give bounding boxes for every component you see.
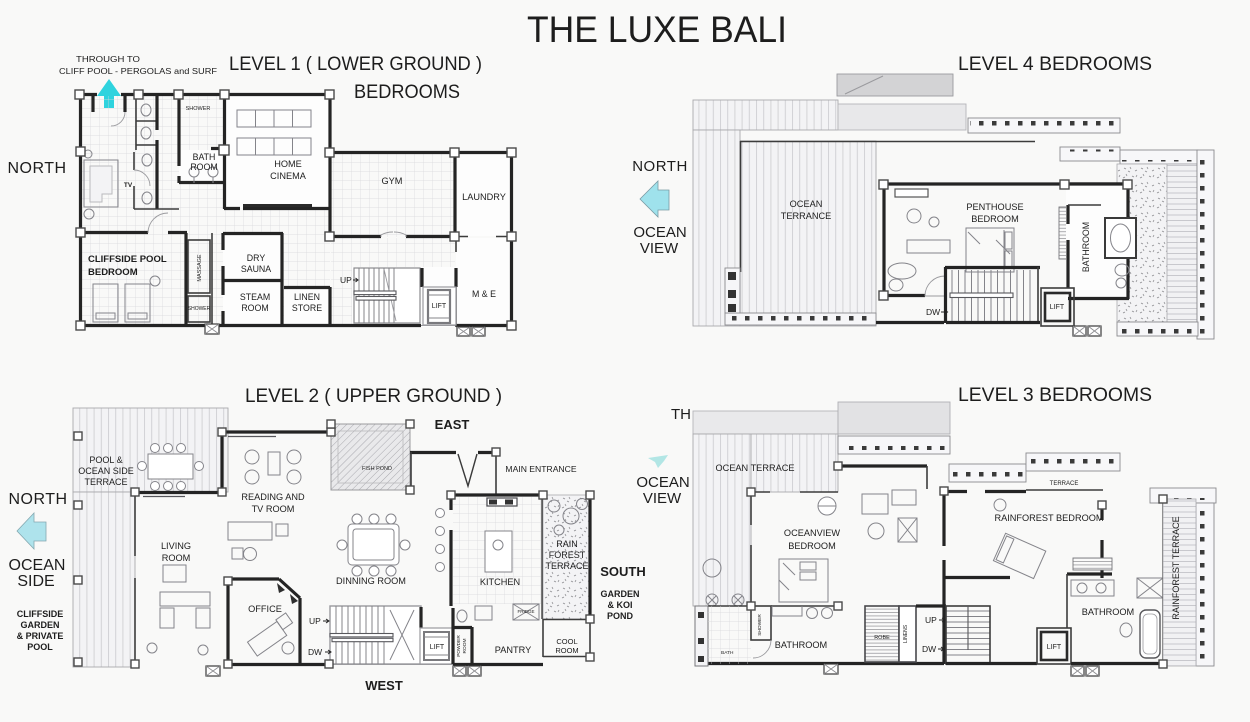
svg-text:BATHROOM: BATHROOM	[1082, 607, 1134, 617]
svg-text:STORE: STORE	[292, 303, 322, 313]
svg-text:OCEANVIEW: OCEANVIEW	[784, 528, 840, 538]
svg-text:PANTRY: PANTRY	[495, 645, 531, 655]
svg-text:KITCHEN: KITCHEN	[480, 577, 520, 587]
svg-text:DW: DW	[926, 307, 940, 317]
svg-text:CLIFFSIDE: CLIFFSIDE	[17, 609, 64, 619]
svg-text:TERRACE: TERRACE	[545, 561, 588, 571]
svg-text:COOL: COOL	[556, 637, 577, 646]
svg-text:LIFT: LIFT	[432, 303, 447, 310]
svg-text:BEDROOM: BEDROOM	[971, 214, 1018, 224]
svg-text:TV: TV	[124, 182, 133, 189]
svg-text:THE LUXE BALI: THE LUXE BALI	[527, 9, 787, 50]
svg-text:HOME: HOME	[274, 159, 302, 169]
svg-text:LEVEL 1 ( LOWER GROUND ): LEVEL 1 ( LOWER GROUND )	[229, 54, 482, 75]
svg-text:UP: UP	[925, 615, 937, 625]
svg-text:POOL: POOL	[27, 642, 53, 652]
svg-text:CINEMA: CINEMA	[270, 171, 307, 181]
svg-text:MASSAGE: MASSAGE	[197, 254, 203, 282]
svg-text:TERRACE: TERRACE	[1050, 481, 1079, 487]
svg-text:& PRIVATE: & PRIVATE	[17, 631, 64, 641]
svg-text:SOUTH: SOUTH	[600, 564, 646, 579]
svg-text:NORTH: NORTH	[8, 491, 67, 508]
svg-text:SAUNA: SAUNA	[241, 264, 271, 274]
svg-text:POOL &: POOL &	[89, 455, 122, 465]
svg-text:OCEAN: OCEAN	[9, 557, 66, 574]
svg-text:GYM: GYM	[382, 176, 403, 186]
svg-text:EAST: EAST	[435, 417, 470, 432]
svg-text:THROUGH TO: THROUGH TO	[76, 54, 140, 64]
svg-text:MAIN ENTRANCE: MAIN ENTRANCE	[505, 464, 576, 474]
svg-text:STEAM: STEAM	[240, 292, 270, 302]
svg-text:DW: DW	[922, 644, 936, 654]
svg-text:OCEAN: OCEAN	[636, 474, 689, 491]
svg-text:POWDER: POWDER	[456, 635, 462, 657]
svg-text:ROOM: ROOM	[162, 553, 191, 563]
svg-text:LIFT: LIFT	[1047, 644, 1062, 651]
svg-text:ROBE: ROBE	[874, 635, 890, 641]
svg-text:FISH POND: FISH POND	[362, 466, 392, 472]
svg-text:BATH: BATH	[721, 650, 734, 656]
svg-text:RAINFOREST TERRACE: RAINFOREST TERRACE	[1171, 516, 1181, 619]
svg-text:ROOM: ROOM	[190, 162, 217, 172]
svg-text:RAINFOREST BEDROOM: RAINFOREST BEDROOM	[994, 513, 1103, 523]
svg-text:BEDROOM: BEDROOM	[88, 267, 138, 278]
svg-text:ROOM: ROOM	[462, 639, 468, 654]
svg-text:LIFT: LIFT	[430, 644, 445, 651]
svg-text:SHOWER: SHOWER	[757, 614, 763, 636]
svg-text:CLIFFSIDE POOL: CLIFFSIDE POOL	[88, 254, 167, 265]
svg-text:GARDEN: GARDEN	[600, 589, 639, 599]
svg-text:SHOWER: SHOWER	[186, 106, 211, 112]
svg-text:ROOM: ROOM	[555, 646, 578, 655]
svg-text:TV ROOM: TV ROOM	[252, 504, 295, 514]
svg-text:LEVEL 3 BEDROOMS: LEVEL 3 BEDROOMS	[958, 385, 1152, 406]
svg-text:RAIN: RAIN	[556, 539, 578, 549]
svg-text:LAUNDRY: LAUNDRY	[462, 192, 506, 202]
svg-text:OFFICE: OFFICE	[248, 604, 282, 614]
svg-text:GARDEN: GARDEN	[20, 620, 59, 630]
svg-text:TH: TH	[671, 406, 691, 423]
svg-text:LIFT: LIFT	[1050, 304, 1065, 311]
svg-text:LINENS: LINENS	[903, 624, 909, 643]
svg-text:BEDROOMS: BEDROOMS	[354, 82, 460, 103]
svg-text:UP: UP	[309, 616, 321, 626]
svg-text:LINEN: LINEN	[294, 292, 320, 302]
svg-text:BEDROOM: BEDROOM	[788, 541, 835, 551]
svg-text:& KOI: & KOI	[607, 600, 632, 610]
svg-text:NORTH: NORTH	[7, 160, 66, 177]
svg-text:READING AND: READING AND	[241, 492, 305, 502]
svg-text:ROOM: ROOM	[241, 303, 268, 313]
svg-text:DINNING ROOM: DINNING ROOM	[336, 576, 406, 586]
svg-text:LEVEL 2 ( UPPER GROUND ): LEVEL 2 ( UPPER GROUND )	[245, 386, 502, 407]
svg-text:LIVING: LIVING	[161, 541, 191, 551]
svg-text:VIEW: VIEW	[640, 240, 679, 257]
svg-text:NORTH: NORTH	[632, 158, 688, 175]
svg-text:TERRANCE: TERRANCE	[781, 211, 832, 221]
svg-text:FOREST: FOREST	[549, 550, 586, 560]
svg-text:FRIDGE: FRIDGE	[517, 609, 534, 614]
svg-text:VIEW: VIEW	[643, 490, 682, 507]
svg-text:BATHROOM: BATHROOM	[775, 640, 827, 650]
svg-text:DRY: DRY	[247, 253, 266, 263]
svg-text:POND: POND	[607, 611, 634, 621]
svg-text:OCEAN: OCEAN	[790, 199, 823, 209]
svg-text:BATH: BATH	[193, 152, 216, 162]
svg-text:SHOWER: SHOWER	[188, 306, 211, 312]
svg-text:DW: DW	[308, 647, 322, 657]
svg-text:WEST: WEST	[365, 678, 403, 693]
svg-text:SIDE: SIDE	[17, 573, 54, 590]
svg-text:PENTHOUSE: PENTHOUSE	[966, 202, 1023, 212]
svg-text:LEVEL 4 BEDROOMS: LEVEL 4 BEDROOMS	[958, 54, 1152, 75]
svg-text:CLIFF POOL - PERGOLAS and SURF: CLIFF POOL - PERGOLAS and SURF	[59, 66, 217, 76]
svg-text:UP: UP	[340, 275, 352, 285]
svg-text:OCEAN: OCEAN	[633, 224, 686, 241]
svg-text:OCEAN TERRACE: OCEAN TERRACE	[716, 463, 795, 473]
svg-text:M & E: M & E	[472, 289, 496, 299]
svg-text:BATHROOM: BATHROOM	[1081, 222, 1091, 272]
svg-text:OCEAN SIDE: OCEAN SIDE	[78, 466, 134, 476]
svg-text:TERRACE: TERRACE	[84, 477, 127, 487]
